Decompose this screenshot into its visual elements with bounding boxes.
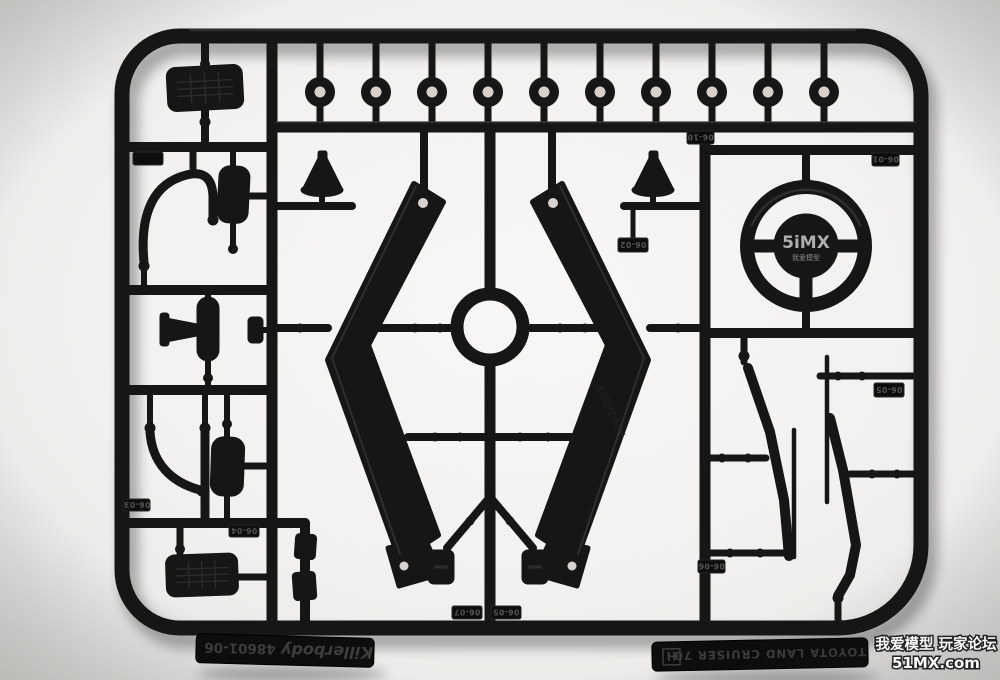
watermark-line1: 我爱模型 玩家论坛 xyxy=(875,635,997,653)
photo-canvas: Killerbody 5iMX 我爱模型 xyxy=(0,0,1000,680)
sprue-photo: Killerbody 5iMX 我爱模型 xyxy=(0,0,1000,680)
corner-watermark: 我爱模型 玩家论坛 51MX.com xyxy=(875,635,997,672)
watermark-line2: 51MX.com xyxy=(892,654,980,672)
vignette-overlay xyxy=(0,0,1000,680)
